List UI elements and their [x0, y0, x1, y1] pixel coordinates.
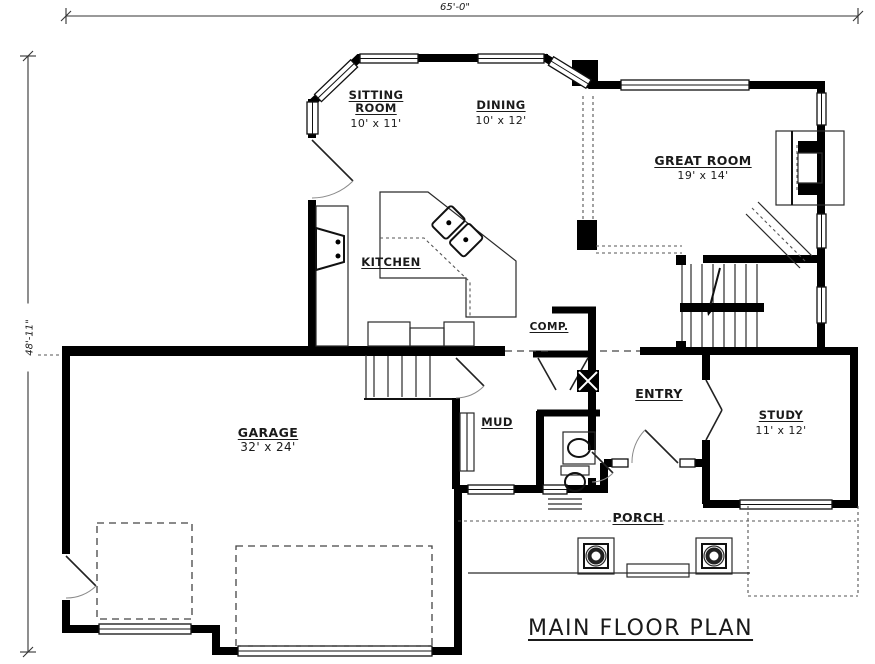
- room-label-comp: COMP.: [525, 321, 573, 334]
- room-label-study: STUDY 11' x 12': [746, 409, 816, 437]
- fireplace-icon: [776, 131, 844, 205]
- room-label-porch: PORCH: [604, 511, 672, 524]
- room-label-entry: ENTRY: [628, 387, 690, 400]
- door-openings: [60, 138, 680, 600]
- laundry-chute: [577, 370, 599, 392]
- room-label-sitting: SITTING ROOM 10' x 11': [346, 89, 406, 130]
- porch-column-left: [578, 538, 614, 574]
- dimension-width-label: 65'-0": [436, 2, 474, 13]
- room-label-kitchen: KITCHEN: [358, 256, 424, 269]
- room-label-great-room: GREAT ROOM 19' x 14': [644, 154, 762, 182]
- dimension-lines: [20, 8, 863, 657]
- basement-stairs: [364, 355, 452, 399]
- doors: [66, 140, 722, 598]
- room-label-dining: DINING 10' x 12': [466, 99, 536, 127]
- main-stairs: [676, 255, 764, 351]
- room-label-mud: MUD: [476, 416, 518, 429]
- plan-title: MAIN FLOOR PLAN: [528, 616, 753, 641]
- mud-bench: [460, 413, 474, 471]
- porch-column-right: [696, 538, 732, 574]
- kitchen-counter: [316, 206, 474, 346]
- room-label-garage: GARAGE 32' x 24': [226, 426, 310, 454]
- floor-plan-page: 65'-0" 48'-11" SITTING ROOM 10' x 11' DI…: [0, 0, 875, 664]
- dimension-height-label: 48'-11": [25, 304, 36, 372]
- floor-plan-drawing: [0, 0, 875, 664]
